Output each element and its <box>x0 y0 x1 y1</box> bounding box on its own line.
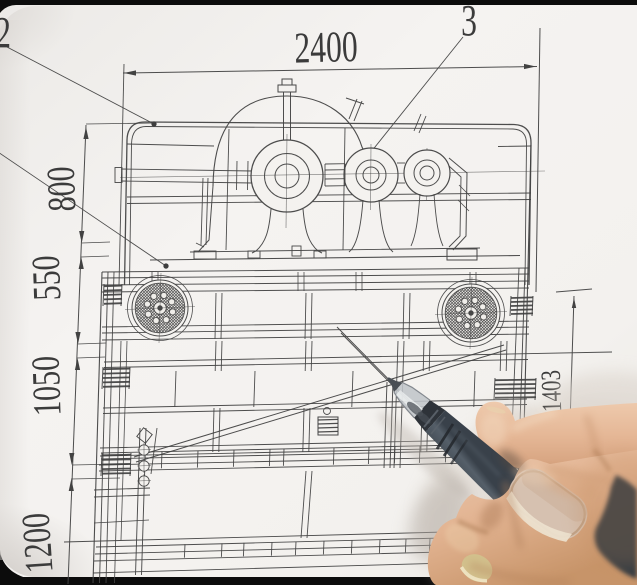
svg-text:2400: 2400 <box>294 23 359 73</box>
svg-text:800: 800 <box>38 166 85 213</box>
svg-text:1050: 1050 <box>22 355 69 417</box>
svg-text:1200: 1200 <box>12 512 61 575</box>
svg-text:3: 3 <box>461 0 477 45</box>
svg-text:550: 550 <box>23 255 70 302</box>
svg-text:2: 2 <box>0 9 11 57</box>
